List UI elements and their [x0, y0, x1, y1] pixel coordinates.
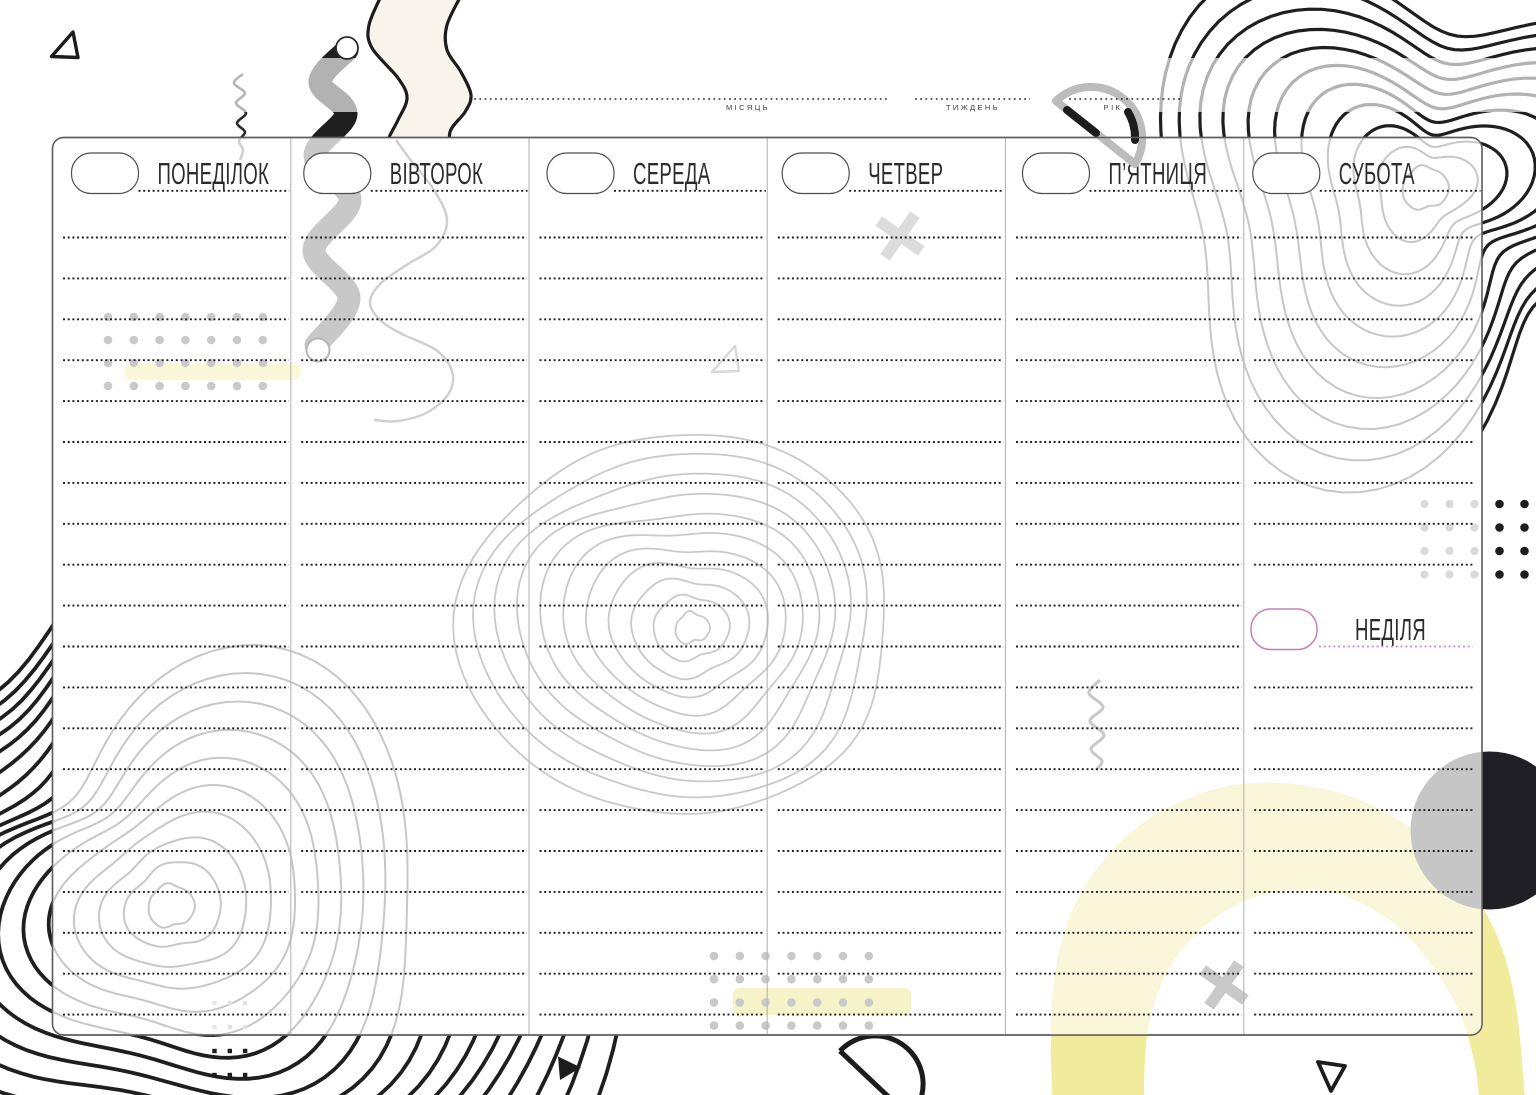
svg-text:СУБОТА: СУБОТА: [1339, 157, 1415, 191]
svg-text:СЕРЕДА: СЕРЕДА: [633, 157, 710, 191]
svg-text:НЕДІЛЯ: НЕДІЛЯ: [1355, 613, 1426, 647]
svg-text:МІСЯЦЬ: МІСЯЦЬ: [726, 103, 770, 112]
svg-text:ВІВТОРОК: ВІВТОРОК: [390, 157, 483, 191]
svg-text:ПОНЕДІЛОК: ПОНЕДІЛОК: [158, 157, 270, 191]
svg-text:ТИЖДЕНЬ: ТИЖДЕНЬ: [946, 103, 1000, 112]
svg-text:ЧЕТВЕР: ЧЕТВЕР: [868, 157, 943, 191]
svg-text:РІК: РІК: [1104, 103, 1123, 112]
svg-text:П’ЯТНИЦЯ: П’ЯТНИЦЯ: [1109, 157, 1208, 191]
